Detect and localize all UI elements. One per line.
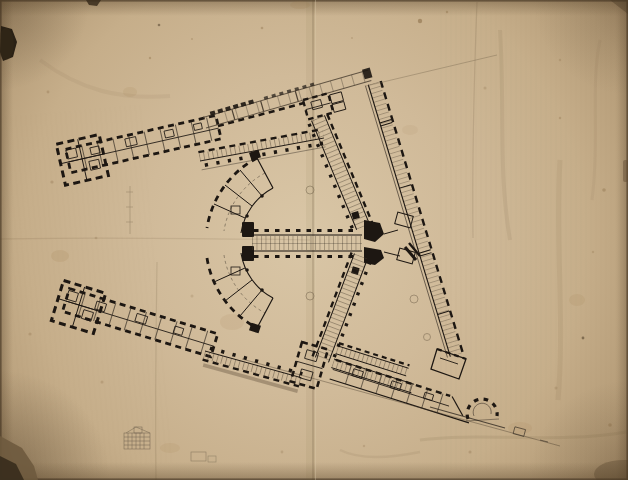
plan-scan — [0, 0, 628, 480]
scanned-plan-document — [0, 0, 628, 480]
paper-nick-right — [623, 160, 628, 182]
